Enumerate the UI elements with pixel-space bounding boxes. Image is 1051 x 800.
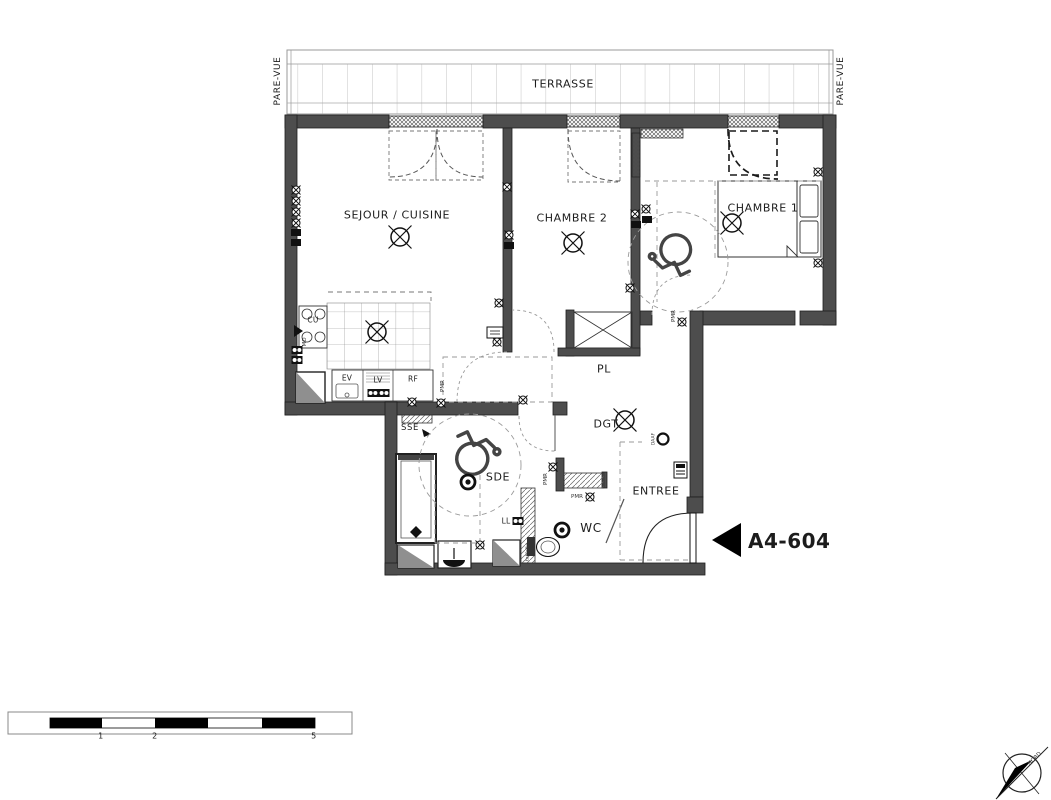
ceiling-light-icon — [721, 212, 744, 235]
spot-light-icon — [461, 475, 475, 489]
kitchen-label-cooktop: CU — [307, 316, 318, 325]
pmr-clearances — [419, 181, 823, 560]
label-towel-dryer: SSE — [401, 423, 419, 433]
spot-light-icon — [555, 523, 569, 537]
room-label-entree: ENTREE — [632, 485, 679, 498]
toilet — [527, 537, 560, 557]
floor-plan: PARE-VUE TERRASSE PARE-VUE SEJOUR / CUIS… — [0, 0, 1051, 800]
kitchen-label-microwave: MO — [302, 337, 308, 346]
kitchen-label-dishwasher: LV — [374, 376, 383, 385]
room-label-sejour-cuisine: SEJOUR / CUISINE — [344, 209, 450, 222]
windows — [389, 116, 779, 563]
label-pmr: PMR — [543, 473, 549, 485]
room-label-chambre1: CHAMBRE 1 — [727, 202, 798, 215]
scale-bar — [8, 712, 352, 734]
room-label-placard: PL — [597, 363, 611, 376]
closet — [574, 312, 632, 348]
room-label-degagement: DGT — [593, 418, 618, 431]
label-pmr: PMR — [671, 310, 677, 322]
ceiling-light-icon — [389, 226, 412, 249]
bed — [718, 181, 821, 257]
intercom-icon — [674, 462, 687, 478]
washbasin — [438, 541, 471, 568]
ceiling-light-icon — [562, 232, 585, 255]
label-shelf: tablette — [526, 543, 531, 561]
room-label-sde: SDE — [486, 471, 510, 484]
scale-tick: 5 — [311, 732, 317, 741]
kitchen-label-fridge: RF — [408, 375, 418, 384]
scale-tick: 2 — [152, 732, 158, 741]
unit-code-label: A4-604 — [748, 529, 830, 553]
room-label-wc: WC — [580, 521, 601, 535]
smoke-detector-icon — [658, 434, 669, 445]
pare-vue-left-label: PARE-VUE — [273, 57, 283, 106]
label-smoke-detector: DAAF — [652, 433, 657, 445]
kitchen-label-sink: EV — [342, 374, 352, 383]
kitchen-fixtures — [294, 292, 433, 403]
label-pmr: PMR — [440, 380, 446, 392]
terrasse-label: TERRASSE — [532, 78, 594, 91]
floor-plan-drawing — [0, 0, 1051, 800]
duct-shaft — [296, 372, 325, 403]
scale-tick: 1 — [98, 732, 104, 741]
unit-arrow-icon — [712, 523, 741, 557]
room-label-chambre2: CHAMBRE 2 — [536, 212, 607, 225]
doors — [389, 129, 778, 563]
pare-vue-right-label: PARE-VUE — [836, 57, 846, 106]
label-washing-machine: LL — [502, 517, 511, 526]
label-pmr: PMR — [571, 494, 583, 500]
